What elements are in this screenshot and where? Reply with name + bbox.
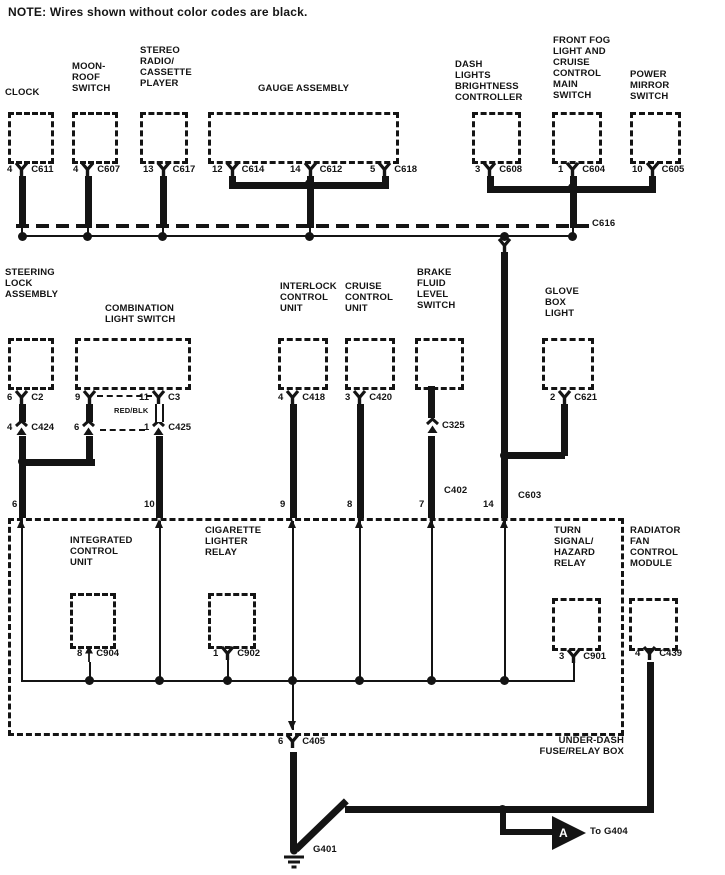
off-page-arrow-letter: A [559, 826, 568, 840]
wire-segment [19, 404, 26, 422]
switch-internal-dashed-link [97, 395, 152, 397]
pin-number: 3 [345, 390, 350, 403]
junction-dot [18, 457, 27, 466]
fusebox-exit-pin: 6 C405 [278, 734, 325, 748]
junction-dot [223, 676, 232, 685]
wire-segment-thin [21, 680, 575, 682]
junction-dot [305, 232, 314, 241]
integrated-control-unit-box [70, 593, 116, 649]
diagram-note: NOTE: Wires shown without color codes ar… [8, 5, 308, 19]
connector-y-icon [642, 646, 657, 660]
pin-number: 6 [278, 734, 283, 747]
arrow-down-icon [288, 721, 296, 730]
turn-signal-hazard-relay-box [552, 598, 601, 651]
ground-g401-label: G401 [313, 845, 337, 856]
comb-inline-connector-left: 6 [74, 420, 96, 436]
cigarette-lighter-relay-box [208, 593, 256, 649]
stereo-radio-label: STEREO RADIO/ CASSETTE PLAYER [140, 46, 192, 90]
wire-segment [19, 459, 95, 466]
comb-switch-pin-right: 11 C3 [139, 390, 180, 404]
wiring-diagram: NOTE: Wires shown without color codes ar… [0, 0, 725, 875]
clock-pin: 4 C611 [7, 162, 53, 176]
pin-number: 4 [7, 162, 12, 175]
pin-number: 3 [559, 649, 564, 662]
connector-id: C901 [583, 649, 606, 662]
entry-pin-steering: 6 [12, 500, 17, 511]
pin-number: 4 [278, 390, 283, 403]
pin-number: 1 [144, 420, 149, 433]
pin-number: 6 [7, 390, 12, 403]
wire-segment [86, 436, 93, 466]
glove-box-pin: 2 C621 [550, 390, 597, 404]
junction-dot [305, 179, 314, 188]
junction-dot [355, 676, 364, 685]
connector-y-icon [352, 390, 367, 404]
connector-y-icon [14, 162, 29, 176]
connector-y-icon [303, 162, 318, 176]
fog-switch-pin: 1 C604 [558, 162, 605, 176]
wire-segment [357, 404, 364, 518]
pin-number: 3 [475, 162, 480, 175]
connector-id: C439 [659, 646, 682, 659]
gauge-assembly-label: GAUGE ASSEMBLY [258, 84, 349, 95]
front-fog-cruise-main-switch-box [552, 112, 602, 164]
dash-lights-pin: 3 C608 [475, 162, 522, 176]
wire-segment [428, 436, 435, 518]
comb-inline-connector-right: 1 C425 [144, 420, 191, 436]
combination-light-switch-label: COMBINATION LIGHT SWITCH [105, 304, 175, 326]
connector-id: C3 [168, 390, 180, 403]
under-dash-fuse-relay-box-label: UNDER-DASH FUSE/RELAY BOX [498, 736, 624, 758]
connector-y-icon [225, 162, 240, 176]
front-fog-cruise-main-switch-label: FRONT FOG LIGHT AND CRUISE CONTROL MAIN … [553, 36, 610, 102]
connector-y-icon [82, 390, 97, 404]
junction-dot [500, 232, 509, 241]
main-fusebox-connector-label: C603 [518, 491, 541, 502]
steering-inline-connector: 4 C424 [7, 420, 54, 436]
wire-segment [647, 662, 654, 810]
wire-segment-thin [20, 235, 574, 237]
junction-dot [568, 183, 577, 192]
wire-color-label: RED/BLK [114, 407, 148, 416]
connector-y-icon [482, 162, 497, 176]
gauge-assembly-box [208, 112, 399, 164]
connector-id: C605 [662, 162, 685, 175]
cruise-control-unit-label: CRUISE CONTROL UNIT [345, 282, 393, 315]
comb-switch-pin-left: 9 [75, 390, 97, 404]
to-g404-label: To G404 [590, 827, 628, 838]
wire-segment-thin [159, 521, 161, 681]
connector-y-icon [156, 162, 171, 176]
pin-number: 4 [73, 162, 78, 175]
wire-segment [500, 829, 554, 835]
connector-id: C612 [320, 162, 343, 175]
turn-signal-hazard-relay-label: TURN SIGNAL/ HAZARD RELAY [554, 526, 595, 570]
connector-y-icon [566, 649, 581, 663]
inline-connector-icon [14, 420, 29, 436]
glove-box-light-box [542, 338, 594, 390]
clock-box [8, 112, 54, 164]
inline-connector-icon [151, 420, 166, 436]
cruise-pin: 3 C420 [345, 390, 392, 404]
connector-id: C607 [97, 162, 120, 175]
wire-segment-thin [504, 521, 506, 681]
entry-pin-main: 14 [483, 500, 494, 511]
connector-y-icon [565, 162, 580, 176]
pin-number: 10 [632, 162, 643, 175]
icu-pin: 8 C904 [77, 646, 119, 662]
integrated-control-unit-label: INTEGRATED CONTROL UNIT [70, 536, 133, 569]
connector-id: C425 [168, 420, 191, 433]
radiator-fan-control-module-box [629, 598, 678, 651]
connector-id: C418 [302, 390, 325, 403]
power-mirror-switch-box [630, 112, 681, 164]
arrow-up-icon [17, 519, 25, 528]
wire-segment [561, 404, 568, 456]
pin-number: 2 [550, 390, 555, 403]
connector-y-icon [220, 646, 235, 660]
cruise-control-unit-box [345, 338, 395, 390]
pin-number: 4 [7, 420, 12, 433]
connector-id: C611 [31, 162, 53, 175]
connector-y-icon [80, 162, 95, 176]
stereo-pin: 13 C617 [143, 162, 195, 176]
connector-id: C604 [582, 162, 605, 175]
pin-number: 5 [370, 162, 375, 175]
moonroof-pin: 4 C607 [73, 162, 120, 176]
wire-segment [85, 176, 92, 228]
connector-y-icon [557, 390, 572, 404]
junction-dot [568, 232, 577, 241]
cigarette-lighter-relay-label: CIGARETTE LIGHTER RELAY [205, 526, 261, 559]
wire-segment [19, 176, 26, 228]
power-mirror-switch-label: POWER MIRROR SWITCH [630, 70, 669, 103]
pin-number: 14 [290, 162, 301, 175]
arrow-up-icon [355, 519, 363, 528]
interlock-control-unit-box [278, 338, 328, 390]
glove-box-light-label: GLOVE BOX LIGHT [545, 287, 579, 320]
gauge-pin-3: 5 C618 [370, 162, 417, 176]
pin-number: 9 [75, 390, 80, 403]
brake-fluid-level-switch-box [415, 338, 464, 390]
brake-fusebox-connector-label: C402 [444, 486, 467, 497]
inline-connector-icon [425, 418, 440, 434]
wire-segment [160, 176, 167, 228]
junction-dot [500, 451, 509, 460]
wire-segment [290, 752, 297, 850]
off-page-arrow-icon [552, 816, 586, 850]
junction-dot [18, 232, 27, 241]
connector-id: C618 [394, 162, 417, 175]
connector-id: C904 [96, 646, 119, 659]
interlock-control-unit-label: INTERLOCK CONTROL UNIT [280, 282, 337, 315]
entry-pin-brake: 7 [419, 500, 424, 511]
moonroof-switch-label: MOON- ROOF SWITCH [72, 62, 110, 95]
dash-lights-brightness-controller-box [472, 112, 521, 164]
connector-y-icon [14, 390, 29, 404]
entry-pin-comb: 10 [144, 500, 155, 511]
pin-number: 1 [558, 162, 563, 175]
pin-number: 8 [77, 646, 82, 659]
connector-id: C621 [574, 390, 597, 403]
gauge-pin-1: 12 C614 [212, 162, 264, 176]
harness-bus-dashed-line [16, 224, 592, 228]
wire-segment-thin [21, 521, 23, 681]
connector-y-icon [151, 390, 166, 404]
turn-relay-pin: 3 C901 [559, 649, 606, 663]
connector-y-icon [285, 390, 300, 404]
wire-segment [290, 404, 297, 518]
arrow-up-connector-icon [84, 646, 94, 662]
dash-lights-brightness-controller-label: DASH LIGHTS BRIGHTNESS CONTROLLER [455, 60, 522, 104]
connector-y-icon [285, 734, 300, 748]
mirror-switch-pin: 10 C605 [632, 162, 684, 176]
connector-id: C608 [499, 162, 522, 175]
pin-number: 12 [212, 162, 223, 175]
junction-dot [288, 676, 297, 685]
radiator-fan-control-module-label: RADIATOR FAN CONTROL MODULE [630, 526, 680, 570]
radiator-fan-pin: 4 C439 [635, 646, 682, 660]
switch-internal-dashed-link [100, 429, 145, 431]
brake-fluid-level-switch-label: BRAKE FLUID LEVEL SWITCH [417, 268, 455, 312]
moonroof-switch-box [72, 112, 118, 164]
connector-id: C2 [31, 390, 43, 403]
connector-id: C405 [302, 734, 325, 747]
striped-wire-segment [155, 404, 164, 422]
wire-segment-thin [431, 521, 433, 681]
steering-lock-pin: 6 C2 [7, 390, 43, 404]
pin-number: 6 [74, 420, 79, 433]
interlock-pin: 4 C418 [278, 390, 325, 404]
junction-dot [427, 676, 436, 685]
junction-dot [85, 676, 94, 685]
arrow-up-icon [500, 519, 508, 528]
steering-lock-box [8, 338, 54, 390]
entry-pin-interlock: 9 [280, 500, 285, 511]
gauge-pin-2: 14 C612 [290, 162, 342, 176]
connector-id: C420 [369, 390, 392, 403]
pin-number: 13 [143, 162, 154, 175]
wire-segment [19, 436, 26, 518]
wire-segment-thin [292, 521, 294, 730]
connector-id: C617 [173, 162, 196, 175]
bus-connector-label: C616 [592, 219, 615, 230]
inline-connector-icon [81, 420, 96, 436]
combination-light-switch-box [75, 338, 191, 390]
wire-segment [86, 404, 93, 422]
junction-dot [83, 232, 92, 241]
wire-segment [501, 252, 508, 518]
arrow-up-icon [427, 519, 435, 528]
clock-label: CLOCK [5, 88, 40, 99]
arrow-up-icon [155, 519, 163, 528]
wire-segment [501, 452, 565, 459]
junction-dot [158, 232, 167, 241]
wire-segment-thin [359, 521, 361, 681]
connector-id: C424 [31, 420, 54, 433]
wire-segment [428, 386, 435, 418]
steering-lock-label: STEERING LOCK ASSEMBLY [5, 268, 58, 301]
pin-number: 4 [635, 646, 640, 659]
entry-pin-cruise: 8 [347, 500, 352, 511]
connector-y-icon [377, 162, 392, 176]
junction-dot [498, 805, 507, 814]
wire-segment-thin [573, 663, 575, 681]
connector-id: C325 [442, 418, 465, 431]
connector-id: C902 [237, 646, 260, 659]
pin-number: 1 [213, 646, 218, 659]
brake-inline-connector: C325 [425, 418, 465, 434]
connector-y-icon [645, 162, 660, 176]
wire-segment [156, 436, 163, 518]
arrow-up-icon [288, 519, 296, 528]
junction-dot [155, 676, 164, 685]
junction-dot [500, 676, 509, 685]
connector-id: C614 [242, 162, 265, 175]
cigarette-relay-pin: 1 C902 [213, 646, 260, 660]
stereo-radio-box [140, 112, 188, 164]
